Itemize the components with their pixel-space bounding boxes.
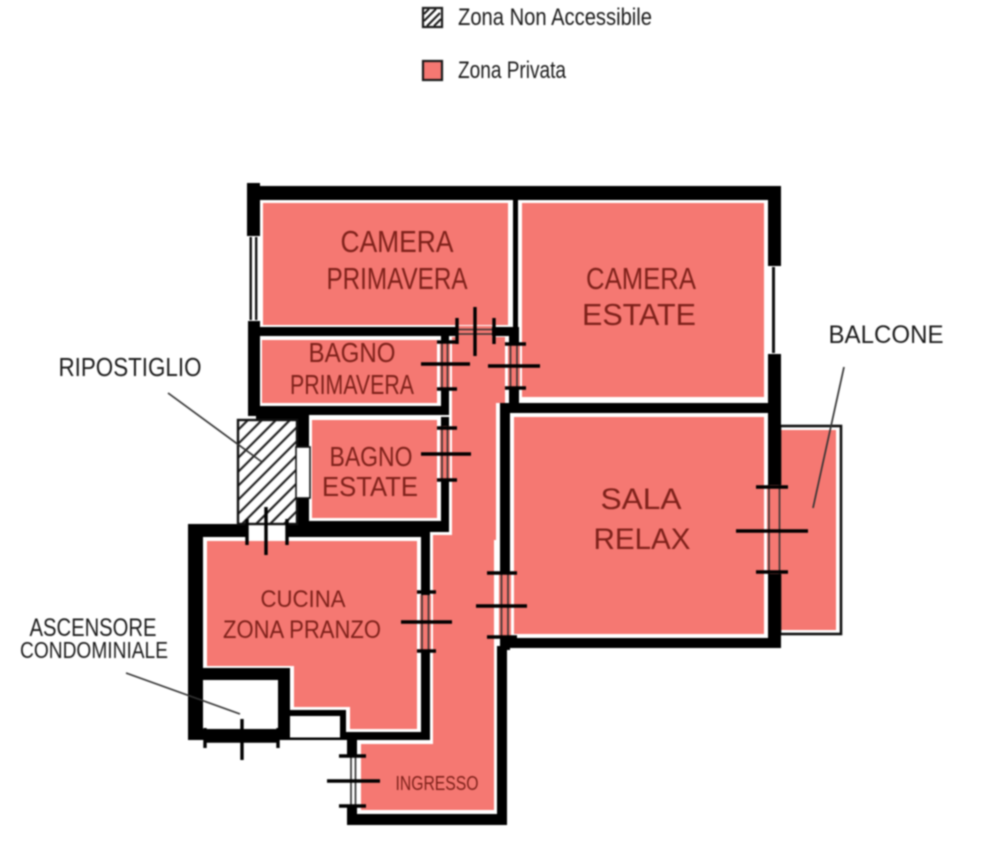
- svg-text:CAMERA: CAMERA: [586, 261, 696, 296]
- svg-text:SALA: SALA: [601, 483, 682, 516]
- svg-text:PRIMAVERA: PRIMAVERA: [290, 369, 414, 400]
- svg-text:BAGNO: BAGNO: [330, 441, 413, 472]
- svg-text:ZONA PRANZO: ZONA PRANZO: [223, 616, 381, 644]
- svg-text:Zona Privata: Zona Privata: [458, 57, 567, 84]
- svg-text:BAGNO: BAGNO: [309, 337, 396, 368]
- svg-text:ESTATE: ESTATE: [582, 297, 696, 332]
- svg-text:CAMERA: CAMERA: [341, 224, 454, 259]
- svg-text:RIPOSTIGLIO: RIPOSTIGLIO: [59, 352, 202, 382]
- svg-text:PRIMAVERA: PRIMAVERA: [327, 261, 468, 296]
- svg-text:Zona Non Accessibile: Zona Non Accessibile: [458, 4, 652, 31]
- svg-text:INGRESSO: INGRESSO: [396, 773, 479, 795]
- svg-text:CUCINA: CUCINA: [261, 586, 346, 613]
- svg-text:BALCONE: BALCONE: [829, 321, 944, 349]
- svg-text:ESTATE: ESTATE: [322, 471, 418, 502]
- svg-text:CONDOMINIALE: CONDOMINIALE: [20, 637, 168, 663]
- svg-text:RELAX: RELAX: [594, 523, 691, 556]
